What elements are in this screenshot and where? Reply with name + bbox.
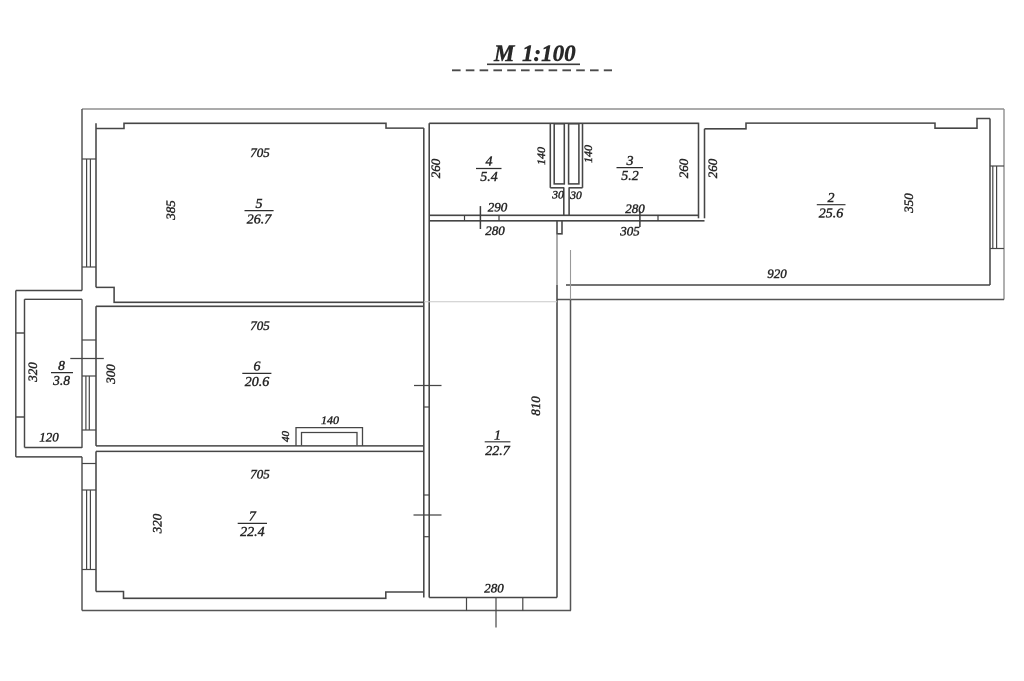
svg-text:1: 1: [494, 428, 501, 443]
svg-text:705: 705: [250, 467, 270, 482]
svg-text:320: 320: [150, 513, 165, 534]
svg-text:920: 920: [767, 266, 787, 281]
svg-text:705: 705: [250, 318, 270, 333]
svg-text:7: 7: [249, 510, 257, 525]
svg-text:260: 260: [676, 158, 691, 178]
svg-text:810: 810: [528, 396, 543, 416]
svg-text:120: 120: [39, 430, 59, 445]
svg-text:280: 280: [625, 201, 645, 216]
svg-text:8: 8: [58, 358, 65, 373]
svg-text:280: 280: [484, 581, 504, 596]
svg-text:320: 320: [25, 362, 40, 383]
svg-text:305: 305: [619, 224, 640, 239]
svg-text:30: 30: [551, 190, 564, 202]
svg-text:300: 300: [103, 364, 118, 385]
svg-text:22.7: 22.7: [485, 444, 511, 459]
svg-text:140: 140: [581, 145, 595, 163]
svg-text:3: 3: [626, 154, 634, 169]
svg-text:350: 350: [901, 193, 916, 214]
svg-text:140: 140: [534, 147, 548, 165]
svg-text:5.2: 5.2: [621, 169, 639, 184]
svg-text:260: 260: [705, 158, 720, 178]
svg-text:М: М: [493, 41, 516, 66]
svg-text:4: 4: [486, 155, 493, 170]
svg-text:5: 5: [256, 197, 263, 212]
svg-text:385: 385: [163, 200, 178, 221]
svg-text:280: 280: [485, 223, 505, 238]
svg-text:260: 260: [428, 158, 443, 178]
svg-text:290: 290: [488, 199, 508, 214]
svg-text:22.4: 22.4: [240, 525, 265, 540]
svg-text:2: 2: [828, 191, 835, 206]
svg-text:3.8: 3.8: [52, 373, 70, 388]
svg-text:25.6: 25.6: [819, 206, 844, 221]
svg-text:20.6: 20.6: [245, 375, 270, 390]
svg-text:1:100: 1:100: [522, 41, 576, 66]
svg-text:40: 40: [280, 431, 292, 443]
svg-text:140: 140: [321, 413, 339, 427]
svg-text:6: 6: [254, 360, 261, 375]
svg-text:705: 705: [250, 145, 270, 160]
svg-text:26.7: 26.7: [247, 212, 273, 227]
svg-text:30: 30: [569, 190, 582, 202]
svg-text:5.4: 5.4: [480, 170, 498, 185]
